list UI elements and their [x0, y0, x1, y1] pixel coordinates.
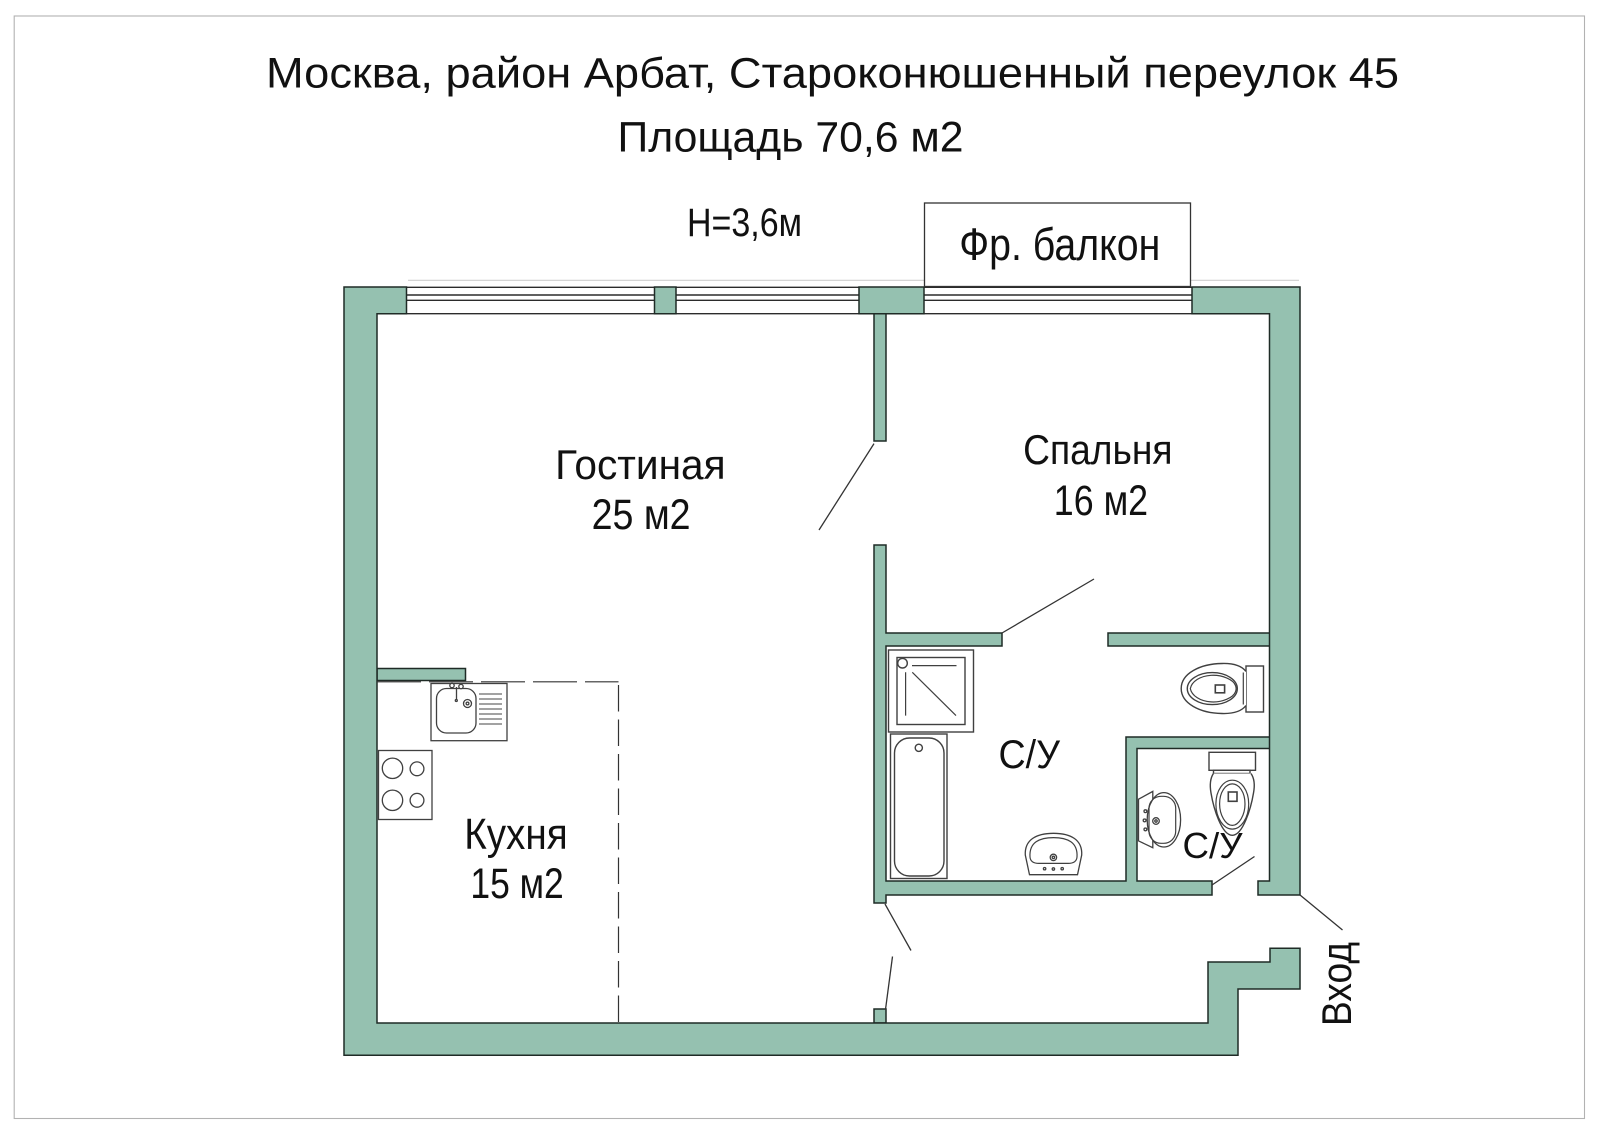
svg-text:С/У: С/У: [999, 733, 1061, 777]
svg-text:Н=3,6м: Н=3,6м: [687, 201, 802, 245]
svg-text:Гостиная: Гостиная: [555, 441, 726, 488]
svg-text:16 м2: 16 м2: [1054, 477, 1148, 525]
svg-text:15 м2: 15 м2: [470, 860, 563, 908]
svg-text:Спальня: Спальня: [1023, 426, 1172, 473]
svg-text:Фр. балкон: Фр. балкон: [959, 219, 1160, 270]
svg-text:Вход: Вход: [1313, 942, 1360, 1026]
svg-text:С/У: С/У: [1183, 825, 1244, 866]
svg-text:Площадь 70,6 м2: Площадь 70,6 м2: [618, 114, 964, 162]
svg-text:Кухня: Кухня: [464, 810, 568, 859]
svg-text:Москва, район Арбат, Староконю: Москва, район Арбат, Староконюшенный пер…: [266, 50, 1399, 98]
svg-text:25 м2: 25 м2: [592, 491, 691, 539]
